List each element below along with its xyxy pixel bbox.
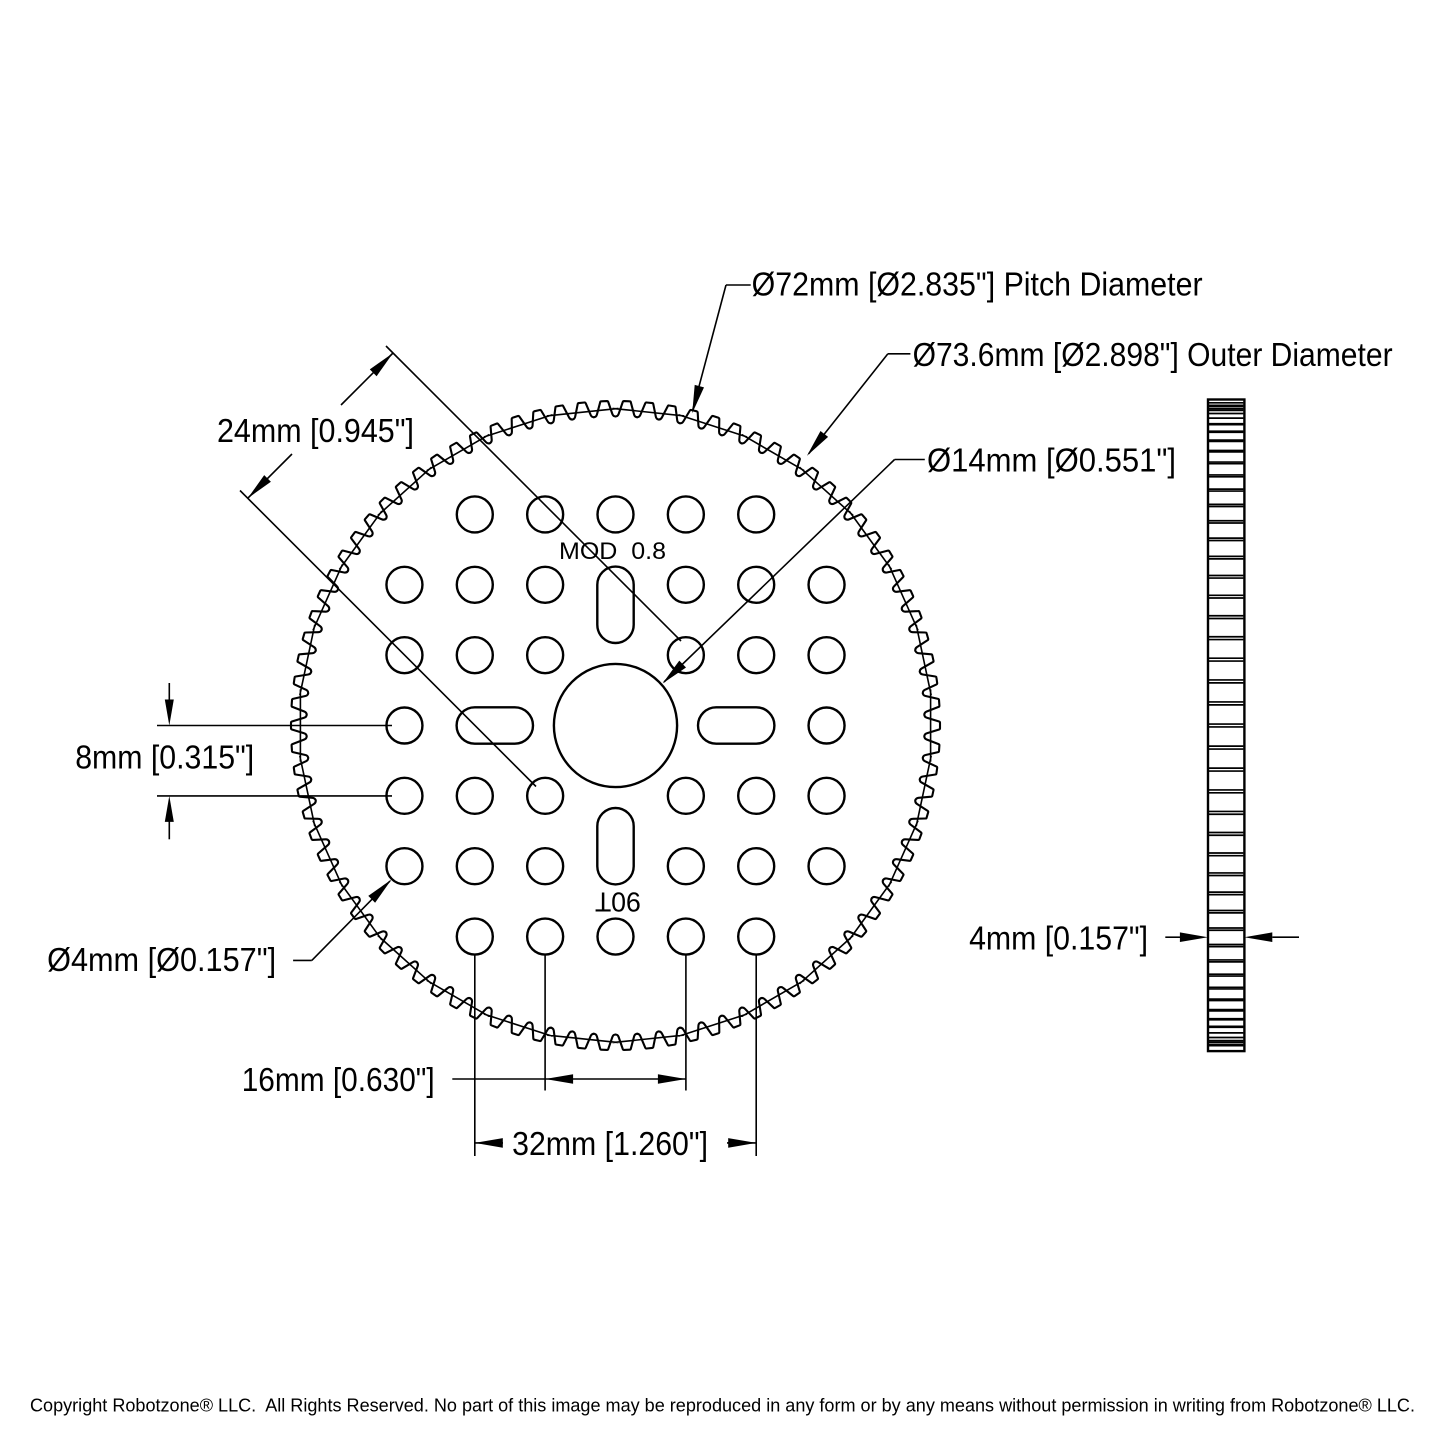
svg-text:MOD 0.8: MOD 0.8	[559, 538, 666, 565]
svg-text:4mm [0.157"]: 4mm [0.157"]	[969, 919, 1148, 956]
svg-text:32mm [1.260"]: 32mm [1.260"]	[512, 1125, 708, 1162]
svg-text:Ø73.6mm [Ø2.898"] Outer Diamet: Ø73.6mm [Ø2.898"] Outer Diameter	[913, 336, 1393, 373]
svg-text:Ø14mm [Ø0.551"]: Ø14mm [Ø0.551"]	[927, 442, 1176, 479]
svg-text:Ø4mm [Ø0.157"]: Ø4mm [Ø0.157"]	[47, 941, 276, 978]
svg-text:90T: 90T	[595, 886, 641, 917]
svg-text:24mm [0.945"]: 24mm [0.945"]	[217, 412, 414, 449]
svg-text:Ø72mm [Ø2.835"] Pitch Diameter: Ø72mm [Ø2.835"] Pitch Diameter	[752, 266, 1203, 303]
svg-text:8mm [0.315"]: 8mm [0.315"]	[75, 739, 254, 776]
svg-text:16mm [0.630"]: 16mm [0.630"]	[242, 1061, 435, 1098]
svg-text:Copyright Robotzone® LLC. All: Copyright Robotzone® LLC. All Rights Res…	[30, 1396, 1415, 1416]
